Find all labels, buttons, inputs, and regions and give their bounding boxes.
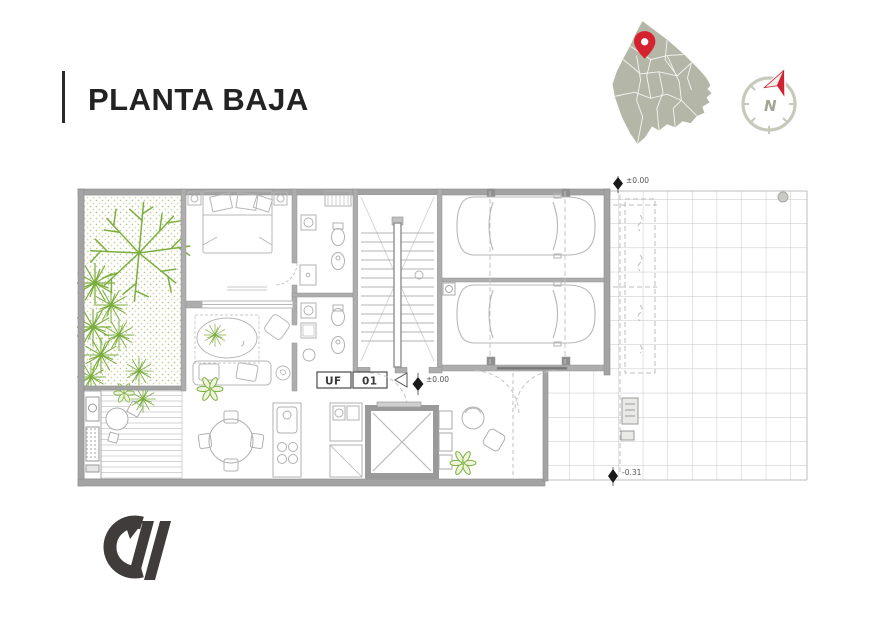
level-marker-center: ±0.00: [413, 373, 450, 395]
svg-text:-0.31: -0.31: [622, 468, 642, 477]
floor-plan-drawing: UF 01 ±0.00: [77, 175, 811, 487]
living-room: [193, 313, 291, 401]
bathrooms: [296, 191, 351, 361]
car-1: [457, 194, 595, 258]
entry-hall: [450, 373, 513, 476]
deck-terrace: [84, 383, 182, 479]
unit-label-number: 01: [362, 376, 378, 388]
level-marker-street: -0.31: [608, 467, 642, 486]
title-accent-bar: [62, 71, 65, 123]
north-arrow: [764, 66, 794, 97]
sidewalk-paving-grid: [545, 191, 807, 480]
car-2: [457, 282, 595, 346]
buenos-aires-map-icon: [606, 14, 718, 150]
svg-text:±0.00: ±0.00: [426, 375, 449, 384]
bedroom: [188, 191, 297, 308]
door-direction-arrow: [395, 373, 407, 387]
elevator: [368, 402, 452, 476]
cw-logo: [80, 510, 180, 582]
dining-area: [198, 411, 264, 471]
floor-plan-sheet: PLANTA BAJA: [0, 0, 877, 620]
compass-icon: N: [733, 62, 805, 140]
compass-north-label: N: [764, 97, 777, 115]
page-title: PLANTA BAJA: [88, 82, 309, 118]
unit-label-uf: UF: [325, 376, 342, 388]
kitchen: [273, 403, 362, 477]
unit-label: UF 01: [317, 372, 387, 388]
garden-patio: [77, 195, 190, 392]
svg-text:±0.00: ±0.00: [626, 176, 649, 185]
staircase: [358, 195, 437, 367]
level-marker-top: ±0.00: [613, 176, 649, 193]
